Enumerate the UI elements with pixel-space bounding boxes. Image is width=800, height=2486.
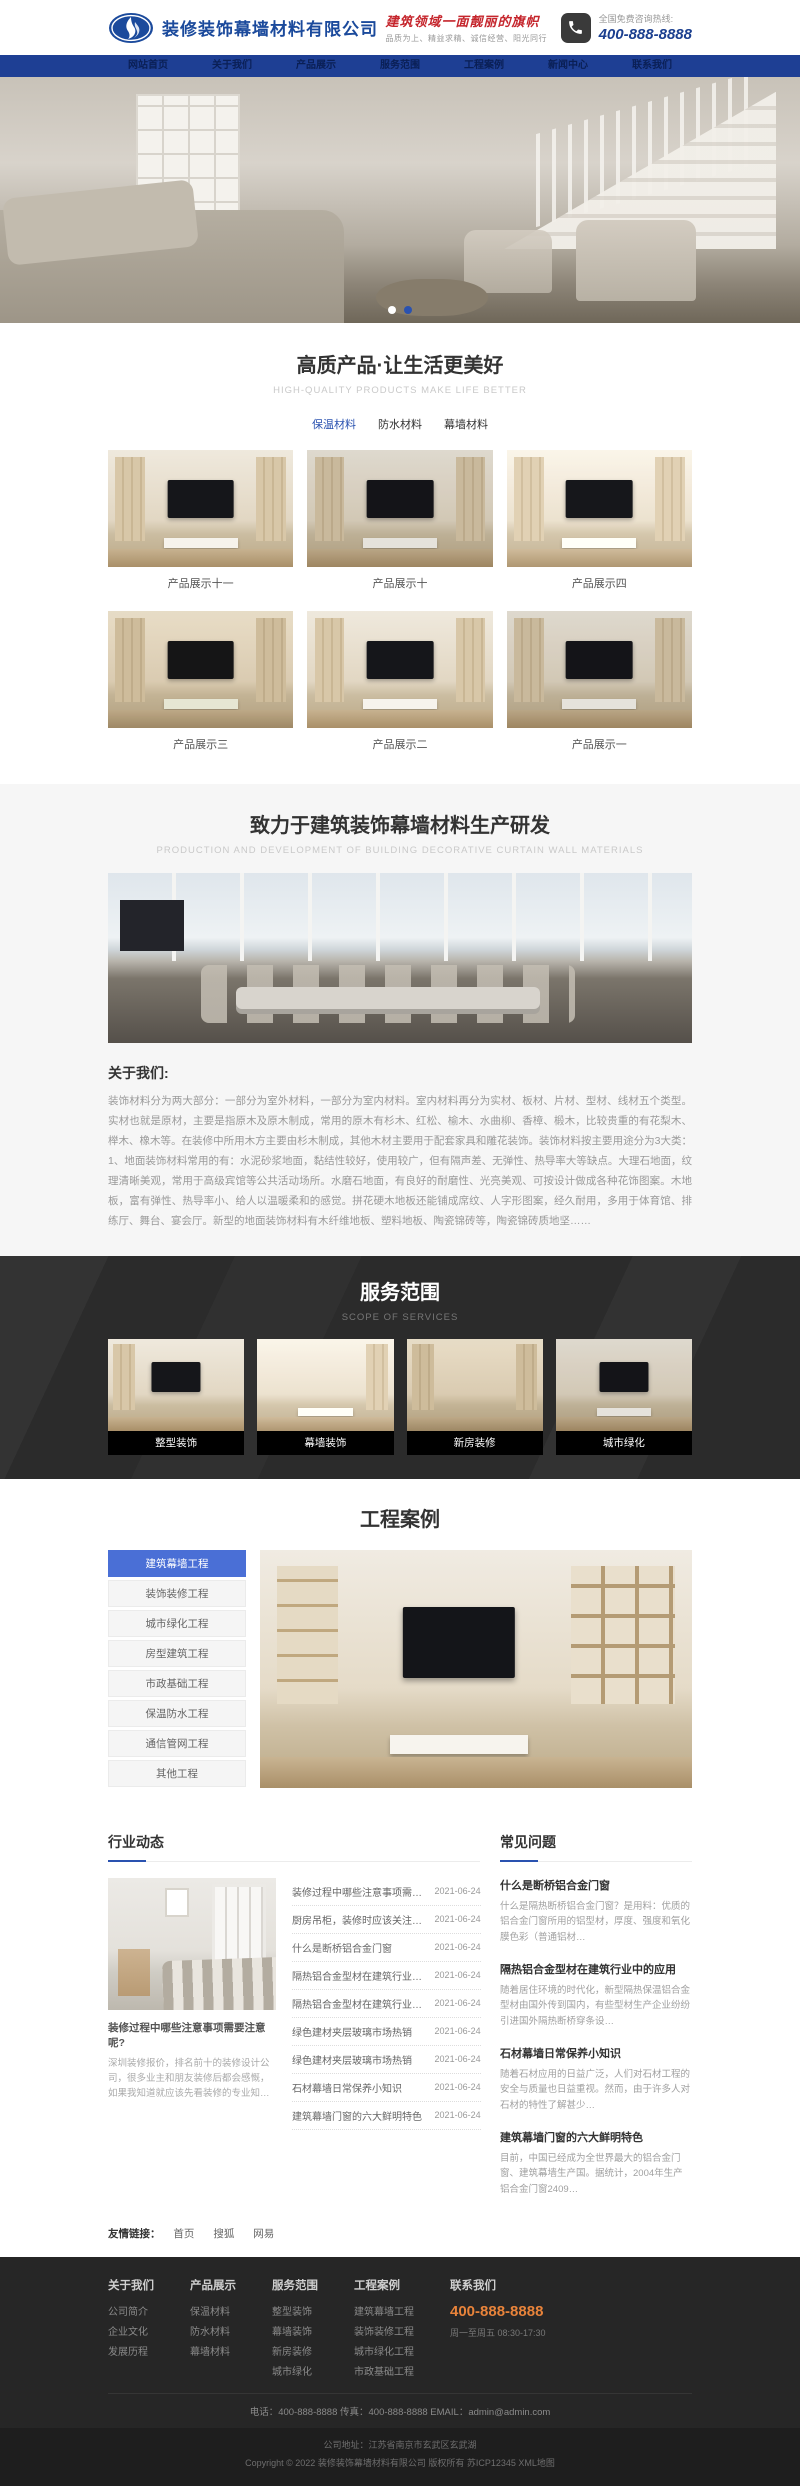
faq-desc: 什么是隔热断桥铝合金门窗？是用料：优质的铝合金门窗所用的铝型材，厚度、强度和氧化… [500,1899,692,1946]
faq-item[interactable]: 建筑幕墙门窗的六大鲜明特色 目前，中国已经成为全世界最大的铝合金门窗、建筑幕墙生… [500,2129,692,2198]
featured-news[interactable]: 装修过程中哪些注意事项需要注意呢? 深圳装修报价，排名前十的装修设计公司，很多业… [108,1878,276,2130]
footer-info-line: 电话：400-888-8888 传真：400-888-8888 EMAIL：ad… [108,2393,692,2428]
faq-desc: 目前，中国已经成为全世界最大的铝合金门窗、建筑幕墙生产国。据统计，2004年生产… [500,2151,692,2198]
faq-title: 石材幕墙日常保养小知识 [500,2045,692,2061]
footer-link[interactable]: 城市绿化工程 [354,2343,414,2363]
rd-subtitle: Production and development of building d… [108,845,692,856]
news-row-title: 绿色建材夹层玻璃市场热销 [292,2024,412,2039]
news-row-title: 隔热铝合金型材在建筑行业中的应用 [292,1996,424,2011]
news-block: 行业动态 装修过程中哪些注意事项需要注意呢? 深圳装修报价，排名前十的装修设计公… [108,1832,480,2198]
case-menu-curtain-wall[interactable]: 建筑幕墙工程 [108,1550,246,1577]
products-section: 高质产品·让生活更美好 HIGH-QUALITY PRODUCTS MAKE L… [108,323,692,778]
footer-col-about: 关于我们 公司简介 企业文化 发展历程 [108,2277,154,2383]
footer-phone: 400-888-8888 [450,2303,546,2320]
faq-title: 隔热铝合金型材在建筑行业中的应用 [500,1961,692,1977]
news-row[interactable]: 绿色建材夹层玻璃市场热销2021-06-24 [292,2046,481,2074]
case-menu-greening[interactable]: 城市绿化工程 [108,1610,246,1637]
news-row-title: 绿色建材夹层玻璃市场热销 [292,2052,412,2067]
featured-news-desc: 深圳装修报价，排名前十的装修设计公司，很多业主和朋友装修后都会感慨，如果我知道就… [108,2056,276,2102]
footer-link[interactable]: 幕墙材料 [190,2343,236,2363]
cases-menu: 建筑幕墙工程 装饰装修工程 城市绿化工程 房型建筑工程 市政基础工程 保温防水工… [108,1550,246,1790]
news-heading: 行业动态 [108,1832,480,1862]
slogan-main: 建筑领域一面靓丽的旗帜 [386,11,548,30]
services-title: 服务范围 [108,1276,692,1305]
faq-item[interactable]: 隔热铝合金型材在建筑行业中的应用 随着居住环境的时代化，新型隔热保温铝合金型材由… [500,1961,692,2030]
service-photo [108,1339,244,1431]
news-row-date: 2021-06-24 [435,2054,481,2064]
products-title: 高质产品·让生活更美好 [108,349,692,378]
footer-link[interactable]: 新房装修 [272,2343,318,2363]
faq-heading: 常见问题 [500,1832,692,1862]
footer-bottom: 公司地址：江苏省南京市玄武区玄武湖 Copyright © 2022 装修装饰幕… [0,2428,800,2486]
product-caption: 产品展示一 [507,728,692,758]
services-subtitle: SCOPE OF SERVICES [108,1312,692,1323]
service-photo [257,1339,393,1431]
footer-address: 公司地址：江苏省南京市玄武区玄武湖 [0,2436,800,2454]
service-caption: 城市绿化 [556,1431,692,1455]
hero-armchair [464,230,552,294]
news-row-title: 石材幕墙日常保养小知识 [292,2080,402,2095]
news-row-title: 厨房吊柜，装修时应该关注哪些问题? [292,1912,424,1927]
product-card[interactable]: 产品展示三 [108,611,293,758]
product-caption: 产品展示十一 [108,567,293,597]
service-caption: 新房装修 [407,1431,543,1455]
product-card[interactable]: 产品展示一 [507,611,692,758]
product-caption: 产品展示二 [307,728,492,758]
slogan-block: 建筑领域一面靓丽的旗帜 品质为上、精益求精、诚信经营、阳光同行 [386,11,548,44]
service-caption: 整型装饰 [108,1431,244,1455]
news-row-title: 装修过程中哪些注意事项需要注意呢? [292,1884,424,1899]
product-tabs: 保温材料 防水材料 幕墙材料 [108,416,692,432]
product-photo [507,450,692,567]
about-heading: 关于我们: [108,1063,692,1083]
faq-title: 什么是断桥铝合金门窗 [500,1877,692,1893]
hotline-label: 全国免费咨询热线: [599,12,692,25]
product-card[interactable]: 产品展示十一 [108,450,293,597]
company-logo-icon [108,12,154,44]
slider-dot-1[interactable] [388,306,396,314]
product-photo [307,450,492,567]
hero-sofa [0,210,344,323]
slider-dots [388,306,412,314]
case-menu-other[interactable]: 其他工程 [108,1760,246,1787]
friend-link[interactable]: 首页 [173,2228,194,2240]
faq-desc: 随着居住环境的时代化，新型隔热保温铝合金型材由国外传到国内，有些型材生产企业纷纷… [500,1983,692,2030]
news-row[interactable]: 石材幕墙日常保养小知识2021-06-24 [292,2074,481,2102]
footer-link[interactable]: 建筑幕墙工程 [354,2303,414,2323]
rd-photo [108,873,692,1043]
footer-col-title: 服务范围 [272,2277,318,2293]
product-grid: 产品展示十一 产品展示十 产品展示四 产品展示三 产品展示二 产品展示一 [108,450,692,758]
footer-link[interactable]: 发展历程 [108,2343,154,2363]
case-menu-pipeline[interactable]: 通信管网工程 [108,1730,246,1757]
tab-curtain-wall[interactable]: 幕墙材料 [444,416,488,432]
news-list: 装修过程中哪些注意事项需要注意呢?2021-06-24 厨房吊柜，装修时应该关注… [292,1878,481,2130]
nav-item-about[interactable]: 关于我们 [206,55,258,77]
service-card[interactable]: 城市绿化 [556,1339,692,1455]
footer-col-products: 产品展示 保温材料 防水材料 幕墙材料 [190,2277,236,2383]
news-row[interactable]: 隔热铝合金型材在建筑行业中的应用2021-06-24 [292,1962,481,1990]
news-row-date: 2021-06-24 [435,1970,481,1980]
case-menu-insulation[interactable]: 保温防水工程 [108,1700,246,1727]
product-photo [108,611,293,728]
friend-links: 友情链接： 首页 搜狐 网易 [108,2224,692,2257]
news-row-date: 2021-06-24 [435,2110,481,2120]
news-row[interactable]: 厨房吊柜，装修时应该关注哪些问题?2021-06-24 [292,1906,481,1934]
friend-links-label: 友情链接： [108,2228,161,2240]
faq-desc: 随着石材应用的日益广泛，人们对石材工程的安全与质量也日益重视。然而，由于许多人对… [500,2067,692,2114]
nav-item-products[interactable]: 产品展示 [290,55,342,77]
product-card[interactable]: 产品展示四 [507,450,692,597]
news-row-title: 什么是断桥铝合金门窗 [292,1940,392,1955]
product-caption: 产品展示四 [507,567,692,597]
hero-slider [0,77,800,323]
news-row[interactable]: 建筑幕墙门窗的六大鲜明特色2021-06-24 [292,2102,481,2130]
nav-item-news[interactable]: 新闻中心 [542,55,594,77]
service-photo [556,1339,692,1431]
faq-block: 常见问题 什么是断桥铝合金门窗 什么是隔热断桥铝合金门窗？是用料：优质的铝合金门… [500,1832,692,2198]
footer-col-title: 关于我们 [108,2277,154,2293]
featured-news-photo [108,1878,276,2010]
footer-link[interactable]: 市政基础工程 [354,2363,414,2383]
news-row[interactable]: 绿色建材夹层玻璃市场热销2021-06-24 [292,2018,481,2046]
service-photo [407,1339,543,1431]
product-photo [307,611,492,728]
footer-link[interactable]: 企业文化 [108,2323,154,2343]
footer-col-title: 产品展示 [190,2277,236,2293]
footer-link[interactable]: 城市绿化 [272,2363,318,2383]
footer-copyright: Copyright © 2022 装修装饰幕墙材料有限公司 版权所有 苏ICP1… [0,2454,800,2472]
news-row-date: 2021-06-24 [435,1998,481,2008]
footer-col-title: 联系我们 [450,2277,546,2293]
product-caption: 产品展示三 [108,728,293,758]
phone-icon [561,13,591,43]
brand[interactable]: 装修装饰幕墙材料有限公司 [108,12,378,44]
case-menu-housing[interactable]: 房型建筑工程 [108,1640,246,1667]
news-row-date: 2021-06-24 [435,2082,481,2092]
footer-link[interactable]: 公司简介 [108,2303,154,2323]
news-row[interactable]: 装修过程中哪些注意事项需要注意呢?2021-06-24 [292,1878,481,1906]
service-card[interactable]: 整型装饰 [108,1339,244,1455]
case-photo[interactable] [260,1550,692,1788]
slogan-sub: 品质为上、精益求精、诚信经营、阳光同行 [386,33,548,44]
footer-link[interactable]: 装饰装修工程 [354,2323,414,2343]
service-card[interactable]: 新房装修 [407,1339,543,1455]
product-photo [108,450,293,567]
cases-section: 工程案例 建筑幕墙工程 装饰装修工程 城市绿化工程 房型建筑工程 市政基础工程 … [108,1479,692,1812]
news-row[interactable]: 隔热铝合金型材在建筑行业中的应用2021-06-24 [292,1990,481,2018]
footer-col-contact: 联系我们 400-888-8888 周一至周五 08:30-17:30 [450,2277,546,2383]
footer-col-cases: 工程案例 建筑幕墙工程 装饰装修工程 城市绿化工程 市政基础工程 [354,2277,414,2383]
product-photo [507,611,692,728]
footer-link[interactable]: 幕墙装饰 [272,2323,318,2343]
cases-title: 工程案例 [108,1503,692,1532]
news-row[interactable]: 什么是断桥铝合金门窗2021-06-24 [292,1934,481,1962]
news-row-title: 建筑幕墙门窗的六大鲜明特色 [292,2108,422,2123]
faq-item[interactable]: 什么是断桥铝合金门窗 什么是隔热断桥铝合金门窗？是用料：优质的铝合金门窗所用的铝… [500,1877,692,1946]
services-section: 服务范围 SCOPE OF SERVICES 整型装饰 幕墙装饰 新房装修 城市… [0,1256,800,1479]
company-name: 装修装饰幕墙材料有限公司 [162,15,378,40]
friend-link[interactable]: 网易 [253,2228,274,2240]
news-faq-section: 行业动态 装修过程中哪些注意事项需要注意呢? 深圳装修报价，排名前十的装修设计公… [108,1812,692,2224]
main-nav: 网站首页 关于我们 产品展示 服务范围 工程案例 新闻中心 联系我们 [0,55,800,77]
services-grid: 整型装饰 幕墙装饰 新房装修 城市绿化 [108,1339,692,1455]
footer: 关于我们 公司简介 企业文化 发展历程 产品展示 保温材料 防水材料 幕墙材料 … [0,2257,800,2486]
news-row-date: 2021-06-24 [435,1914,481,1924]
news-row-title: 隔热铝合金型材在建筑行业中的应用 [292,1968,424,1983]
footer-link[interactable]: 防水材料 [190,2323,236,2343]
case-menu-decoration[interactable]: 装饰装修工程 [108,1580,246,1607]
slider-dot-2[interactable] [404,306,412,314]
product-caption: 产品展示十 [307,567,492,597]
tab-waterproof[interactable]: 防水材料 [378,416,422,432]
hotline-number: 400-888-8888 [599,26,692,43]
hotline-block: 全国免费咨询热线: 400-888-8888 [561,12,692,43]
news-row-date: 2021-06-24 [435,1886,481,1896]
product-card[interactable]: 产品展示二 [307,611,492,758]
footer-link[interactable]: 保温材料 [190,2303,236,2323]
tab-insulation[interactable]: 保温材料 [312,416,356,432]
footer-col-title: 工程案例 [354,2277,414,2293]
top-bar: 装修装饰幕墙材料有限公司 建筑领域一面靓丽的旗帜 品质为上、精益求精、诚信经营、… [0,0,800,55]
faq-item[interactable]: 石材幕墙日常保养小知识 随着石材应用的日益广泛，人们对石材工程的安全与质量也日益… [500,2045,692,2114]
hero-armchair [576,220,696,301]
nav-item-services[interactable]: 服务范围 [374,55,426,77]
products-subtitle: HIGH-QUALITY PRODUCTS MAKE LIFE BETTER [108,385,692,396]
footer-col-services: 服务范围 整型装饰 幕墙装饰 新房装修 城市绿化 [272,2277,318,2383]
rd-title: 致力于建筑装饰幕墙材料生产研发 [108,809,692,838]
nav-item-contact[interactable]: 联系我们 [626,55,678,77]
service-caption: 幕墙装饰 [257,1431,393,1455]
faq-title: 建筑幕墙门窗的六大鲜明特色 [500,2129,692,2145]
news-row-date: 2021-06-24 [435,1942,481,1952]
product-card[interactable]: 产品展示十 [307,450,492,597]
nav-item-cases[interactable]: 工程案例 [458,55,510,77]
footer-hours: 周一至周五 08:30-17:30 [450,2326,546,2339]
service-card[interactable]: 幕墙装饰 [257,1339,393,1455]
nav-item-home[interactable]: 网站首页 [122,55,174,77]
footer-link[interactable]: 整型装饰 [272,2303,318,2323]
friend-link[interactable]: 搜狐 [213,2228,234,2240]
about-paragraph: 装饰材料分为两大部分：一部分为室外材料，一部分为室内材料。室内材料再分为实材、板… [108,1092,692,1232]
case-menu-municipal[interactable]: 市政基础工程 [108,1670,246,1697]
rd-section: 致力于建筑装饰幕墙材料生产研发 Production and developme… [0,784,800,1256]
